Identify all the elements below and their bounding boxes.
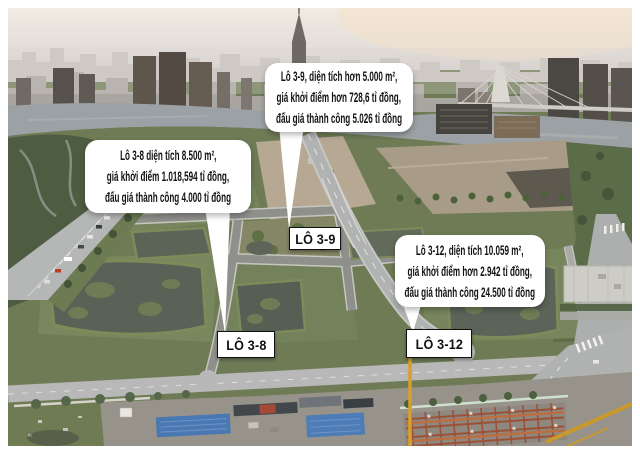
plot-label-text: LÔ 3-8 <box>226 337 266 353</box>
callout-line: đấu giá thành công 5.026 tỉ đồng <box>276 108 402 129</box>
plot-label-lo-3-9: LÔ 3-9 <box>289 227 341 250</box>
callout-line: Lô 3-9, diện tích hơn 5.000 m², <box>281 66 397 87</box>
plot-label-lo-3-12: LÔ 3-12 <box>406 329 472 358</box>
pond-upper-left <box>132 228 211 259</box>
white-shed <box>120 408 132 417</box>
plot-label-text: LÔ 3-9 <box>295 231 335 247</box>
plot-label-lo-3-8: LÔ 3-8 <box>217 331 275 358</box>
callout-lo-3-12: Lô 3-12, diện tích 10.059 m², giá khởi đ… <box>395 235 545 307</box>
callout-lo-3-8: Lô 3-8 diện tích 8.500 m², giá khởi điểm… <box>85 140 251 213</box>
callout-line: Lô 3-12, diện tích 10.059 m², <box>416 240 524 261</box>
callout-line: giá khởi điểm 1.018,594 tỉ đồng, <box>107 166 229 187</box>
callout-line: đấu giá thành công 4.000 tỉ đồng <box>105 187 231 208</box>
plot-label-text: LÔ 3-12 <box>415 336 462 352</box>
callout-line: giá khởi điểm hơn 2.942 tỉ đồng, <box>408 261 532 282</box>
callout-lo-3-9: Lô 3-9, diện tích hơn 5.000 m², giá khởi… <box>265 63 413 132</box>
aerial-photo: Lô 3-9, diện tích hơn 5.000 m², giá khởi… <box>8 8 632 446</box>
callout-line: đấu giá thành công 24.500 tỉ đồng <box>405 282 536 303</box>
callout-line: Lô 3-8 diện tích 8.500 m², <box>120 145 216 166</box>
callout-line: giá khởi điểm hơn 728,6 tỉ đồng, <box>277 87 401 108</box>
red-container <box>259 404 275 414</box>
photo-frame: Lô 3-9, diện tích hơn 5.000 m², giá khởi… <box>0 0 640 454</box>
